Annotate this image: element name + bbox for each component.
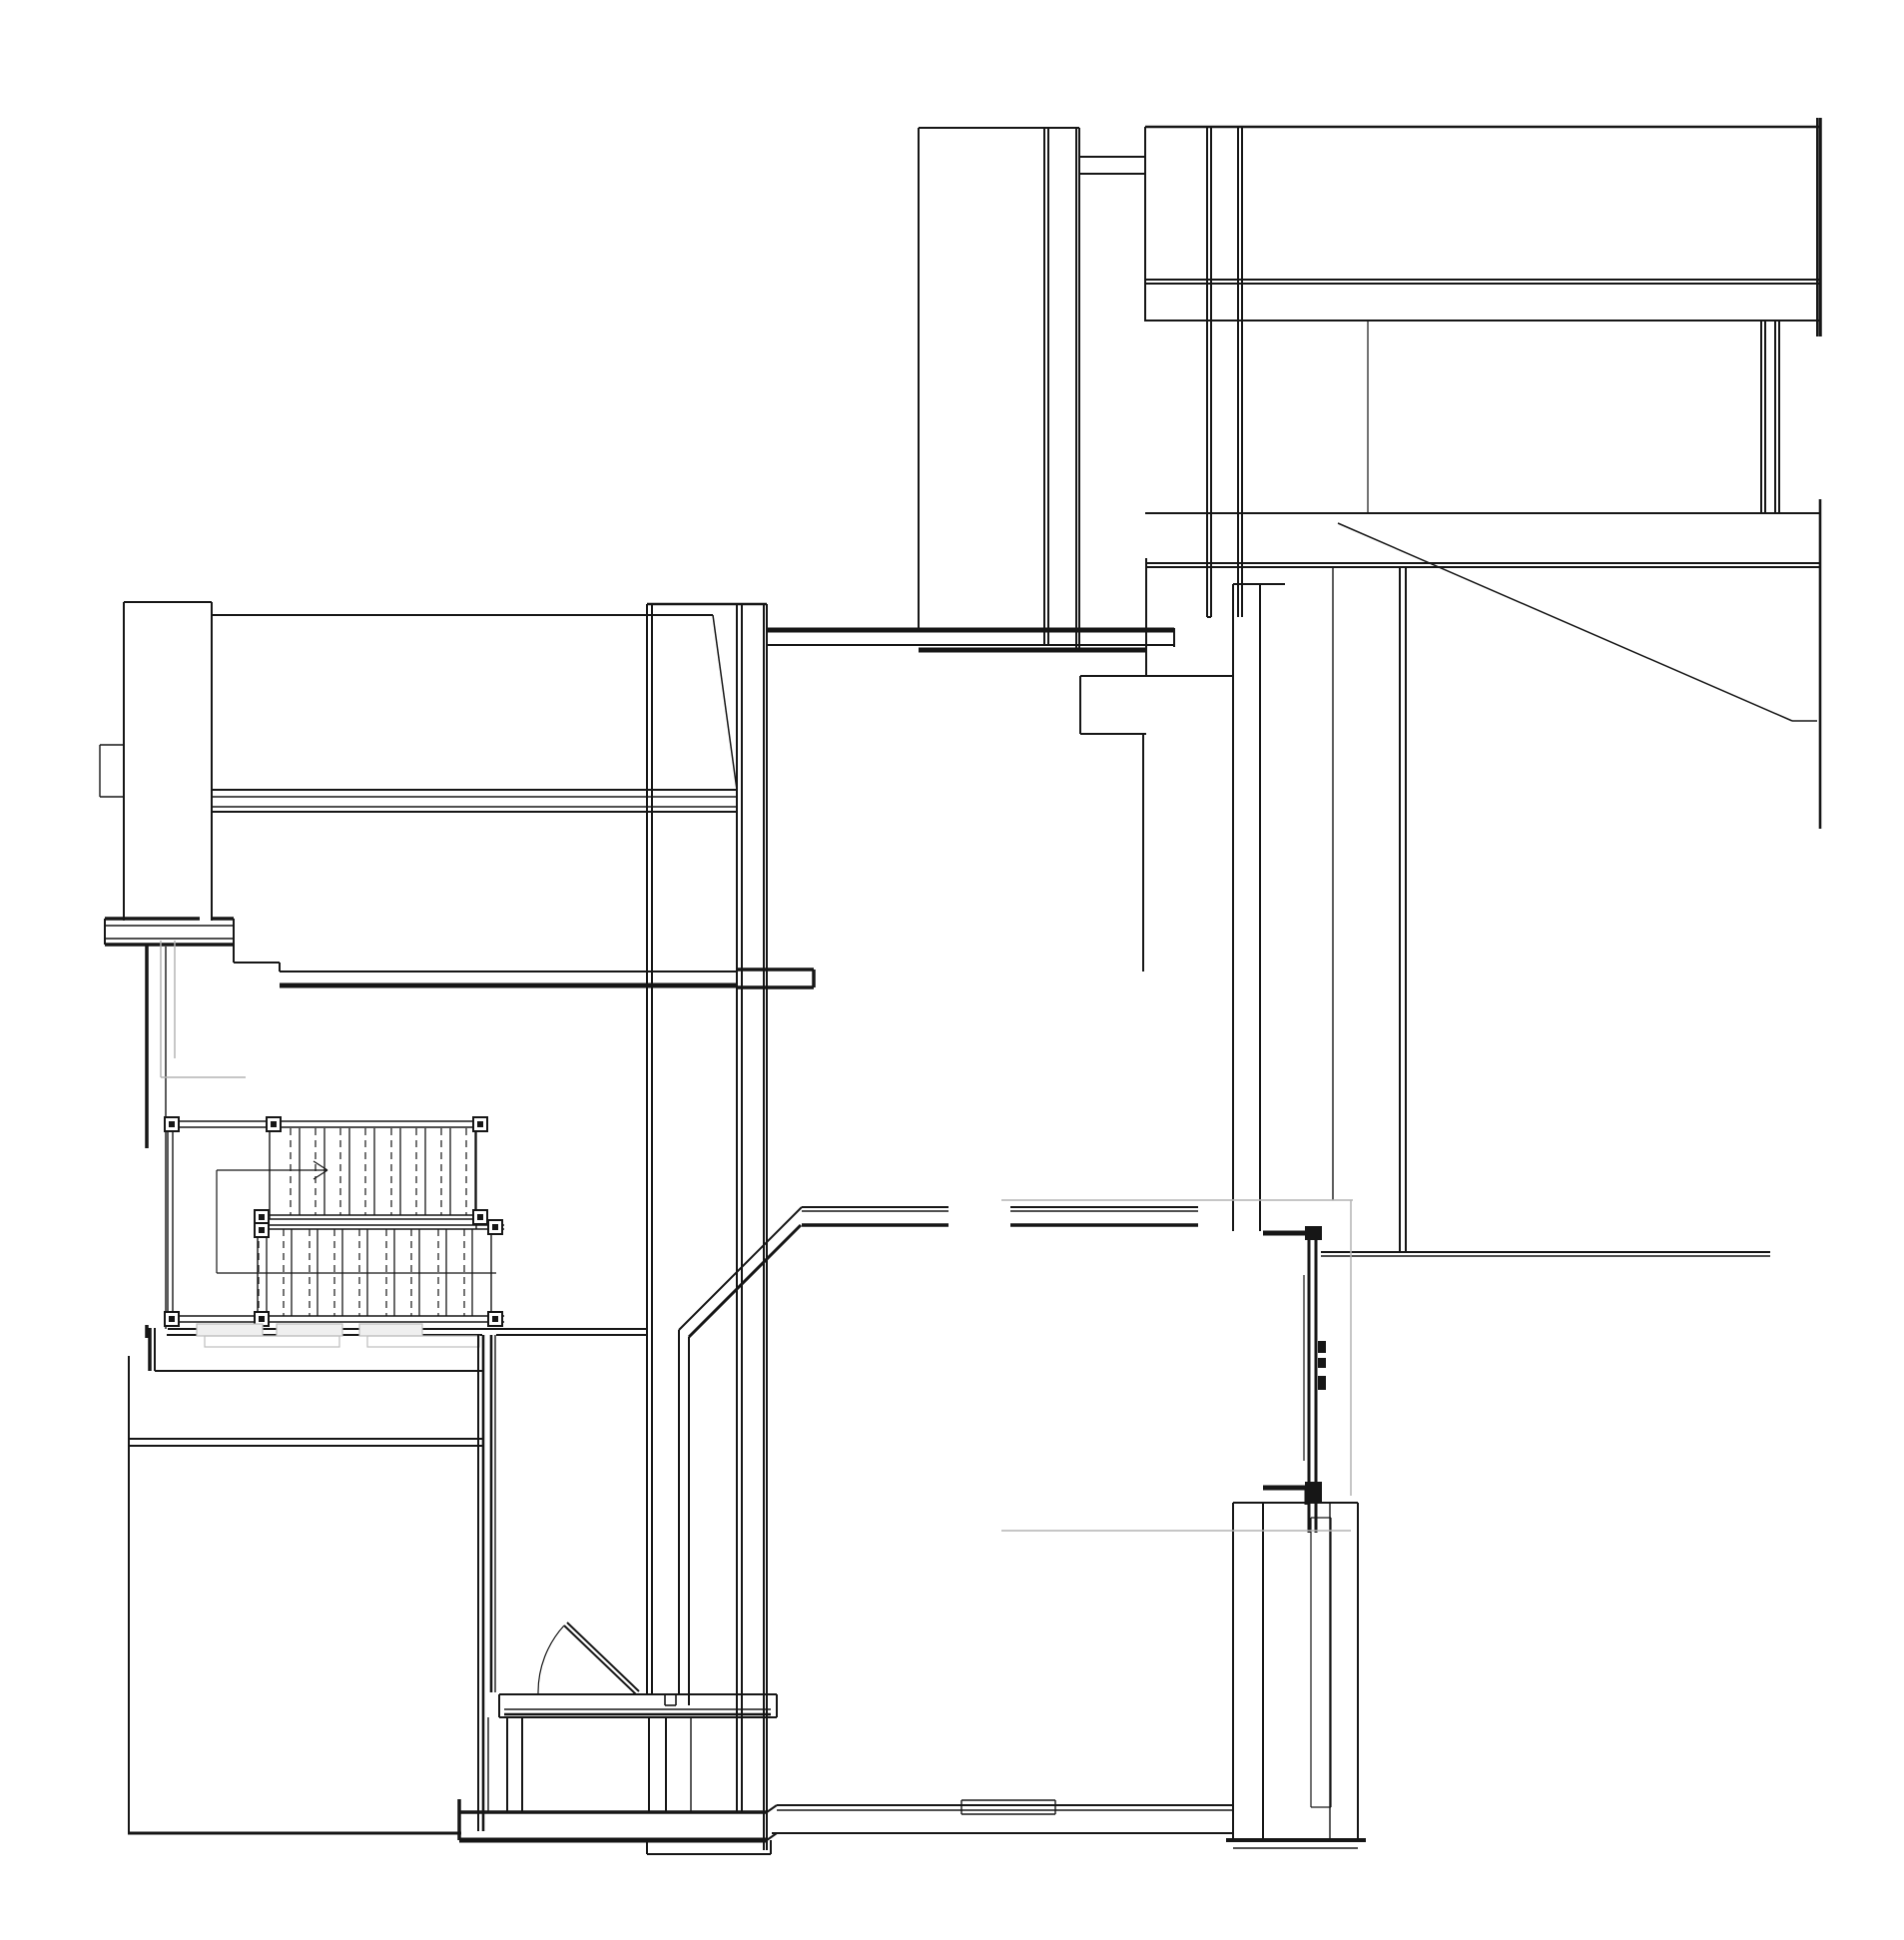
top-center-bar: [919, 128, 1145, 648]
door-swing-arc: [538, 1625, 564, 1693]
lower-left-room: [128, 1328, 482, 1833]
stair-room-walls: [147, 945, 166, 1338]
under-stair-gray-outlines: [205, 1336, 479, 1347]
top-right-block: [1145, 118, 1820, 829]
stair-newel-posts: [165, 1117, 502, 1326]
room-top-wall-chamfer: [679, 1207, 1198, 1705]
left-rooms: [100, 602, 814, 987]
door-leaf: [564, 1622, 639, 1694]
vestibule-walls: [478, 1335, 495, 1831]
center-ledge: [767, 558, 1233, 971]
stair-rails: [168, 1121, 504, 1322]
floor-plan-svg: [0, 0, 1904, 1940]
porch-posts: [488, 1717, 691, 1812]
floor-plan-page: [0, 0, 1904, 1940]
pier: [1226, 1503, 1366, 1848]
door-threshold: [499, 1694, 777, 1717]
construction-gray-lines: [161, 941, 1353, 1531]
bottom-wall-right: [772, 1800, 1233, 1833]
floor-plan-layers: [100, 118, 1820, 1854]
center-wall-pairs: [647, 604, 767, 1850]
stair-treads-upper-hidden: [291, 1128, 466, 1215]
under-stair-gray-boxes: [197, 1324, 422, 1336]
right-middle-walls: [1233, 567, 1770, 1256]
